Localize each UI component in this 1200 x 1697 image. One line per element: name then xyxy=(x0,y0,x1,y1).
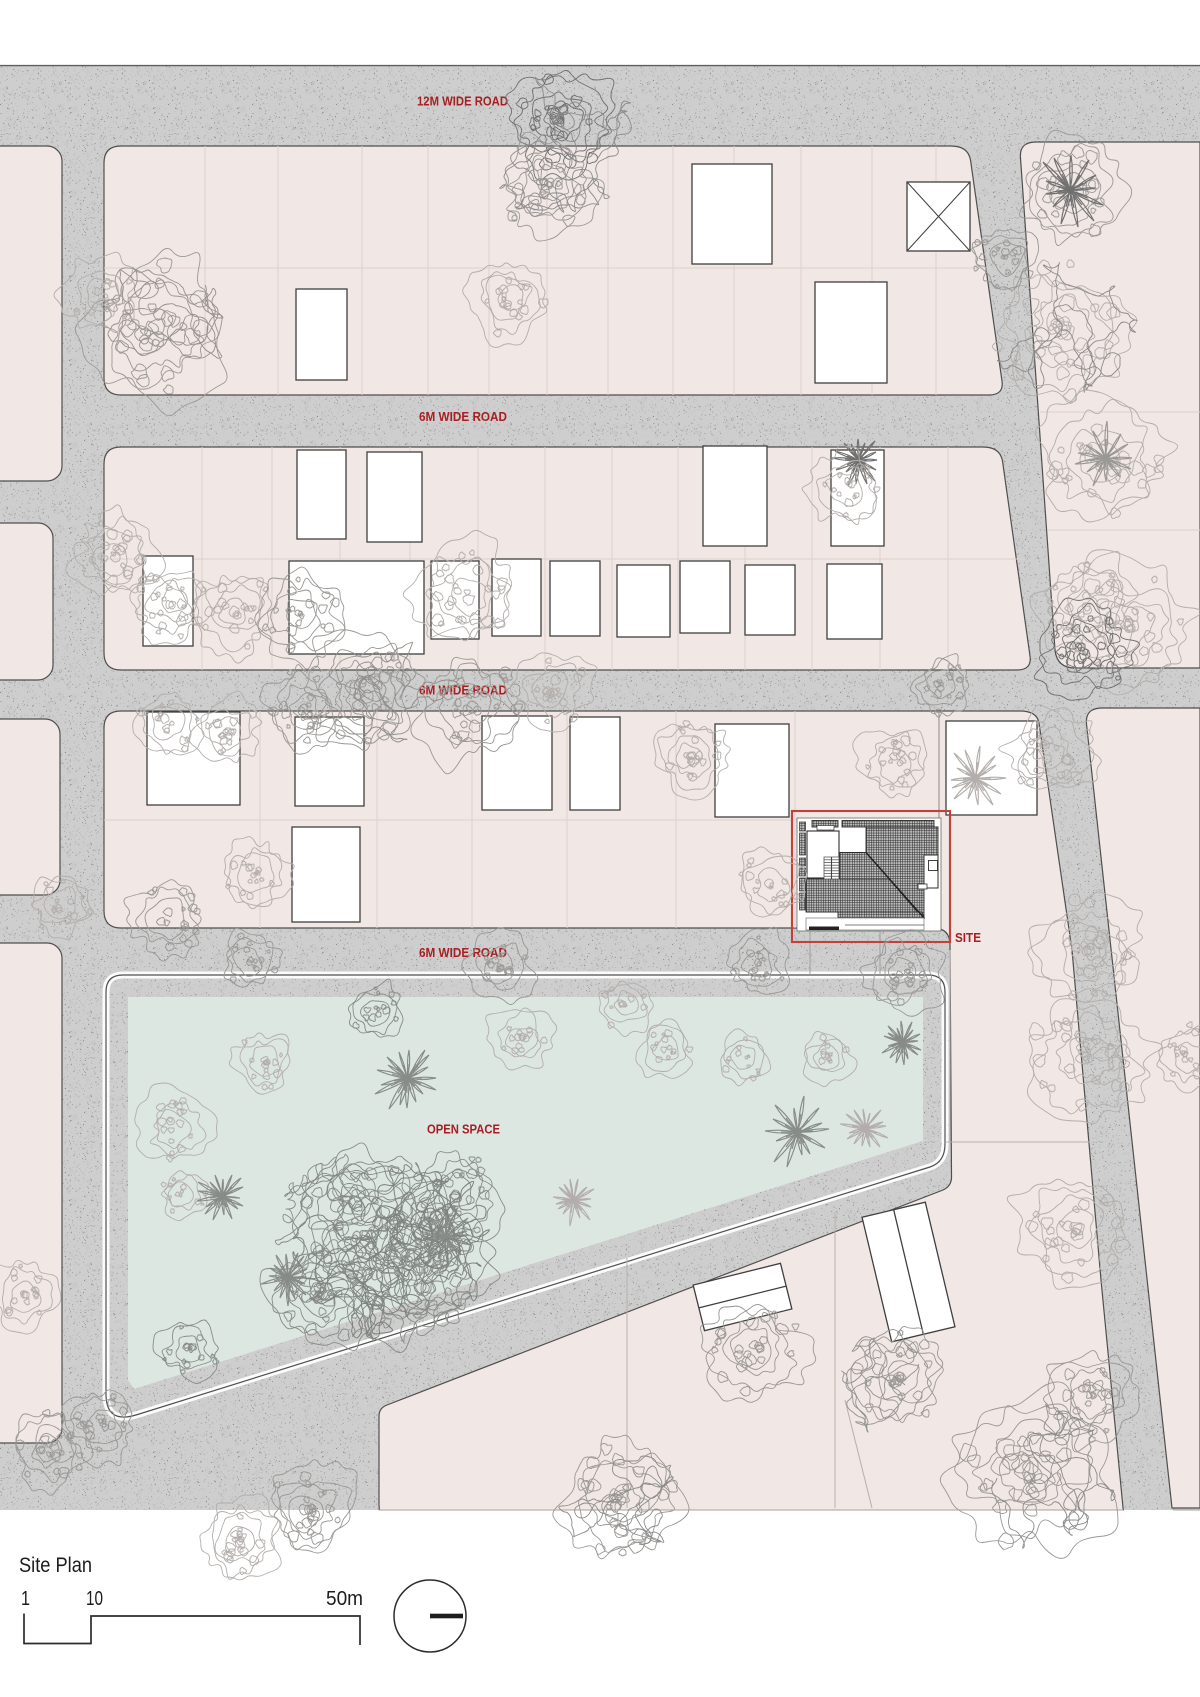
svg-text:OPEN SPACE: OPEN SPACE xyxy=(427,1122,500,1137)
svg-text:6M WIDE ROAD: 6M WIDE ROAD xyxy=(419,409,507,424)
svg-text:SITE: SITE xyxy=(955,930,981,945)
svg-text:12M WIDE ROAD: 12M WIDE ROAD xyxy=(417,94,508,109)
svg-text:10: 10 xyxy=(86,1588,103,1610)
svg-text:Site Plan: Site Plan xyxy=(19,1554,92,1577)
svg-text:50m: 50m xyxy=(326,1588,363,1610)
svg-text:1: 1 xyxy=(21,1588,30,1610)
